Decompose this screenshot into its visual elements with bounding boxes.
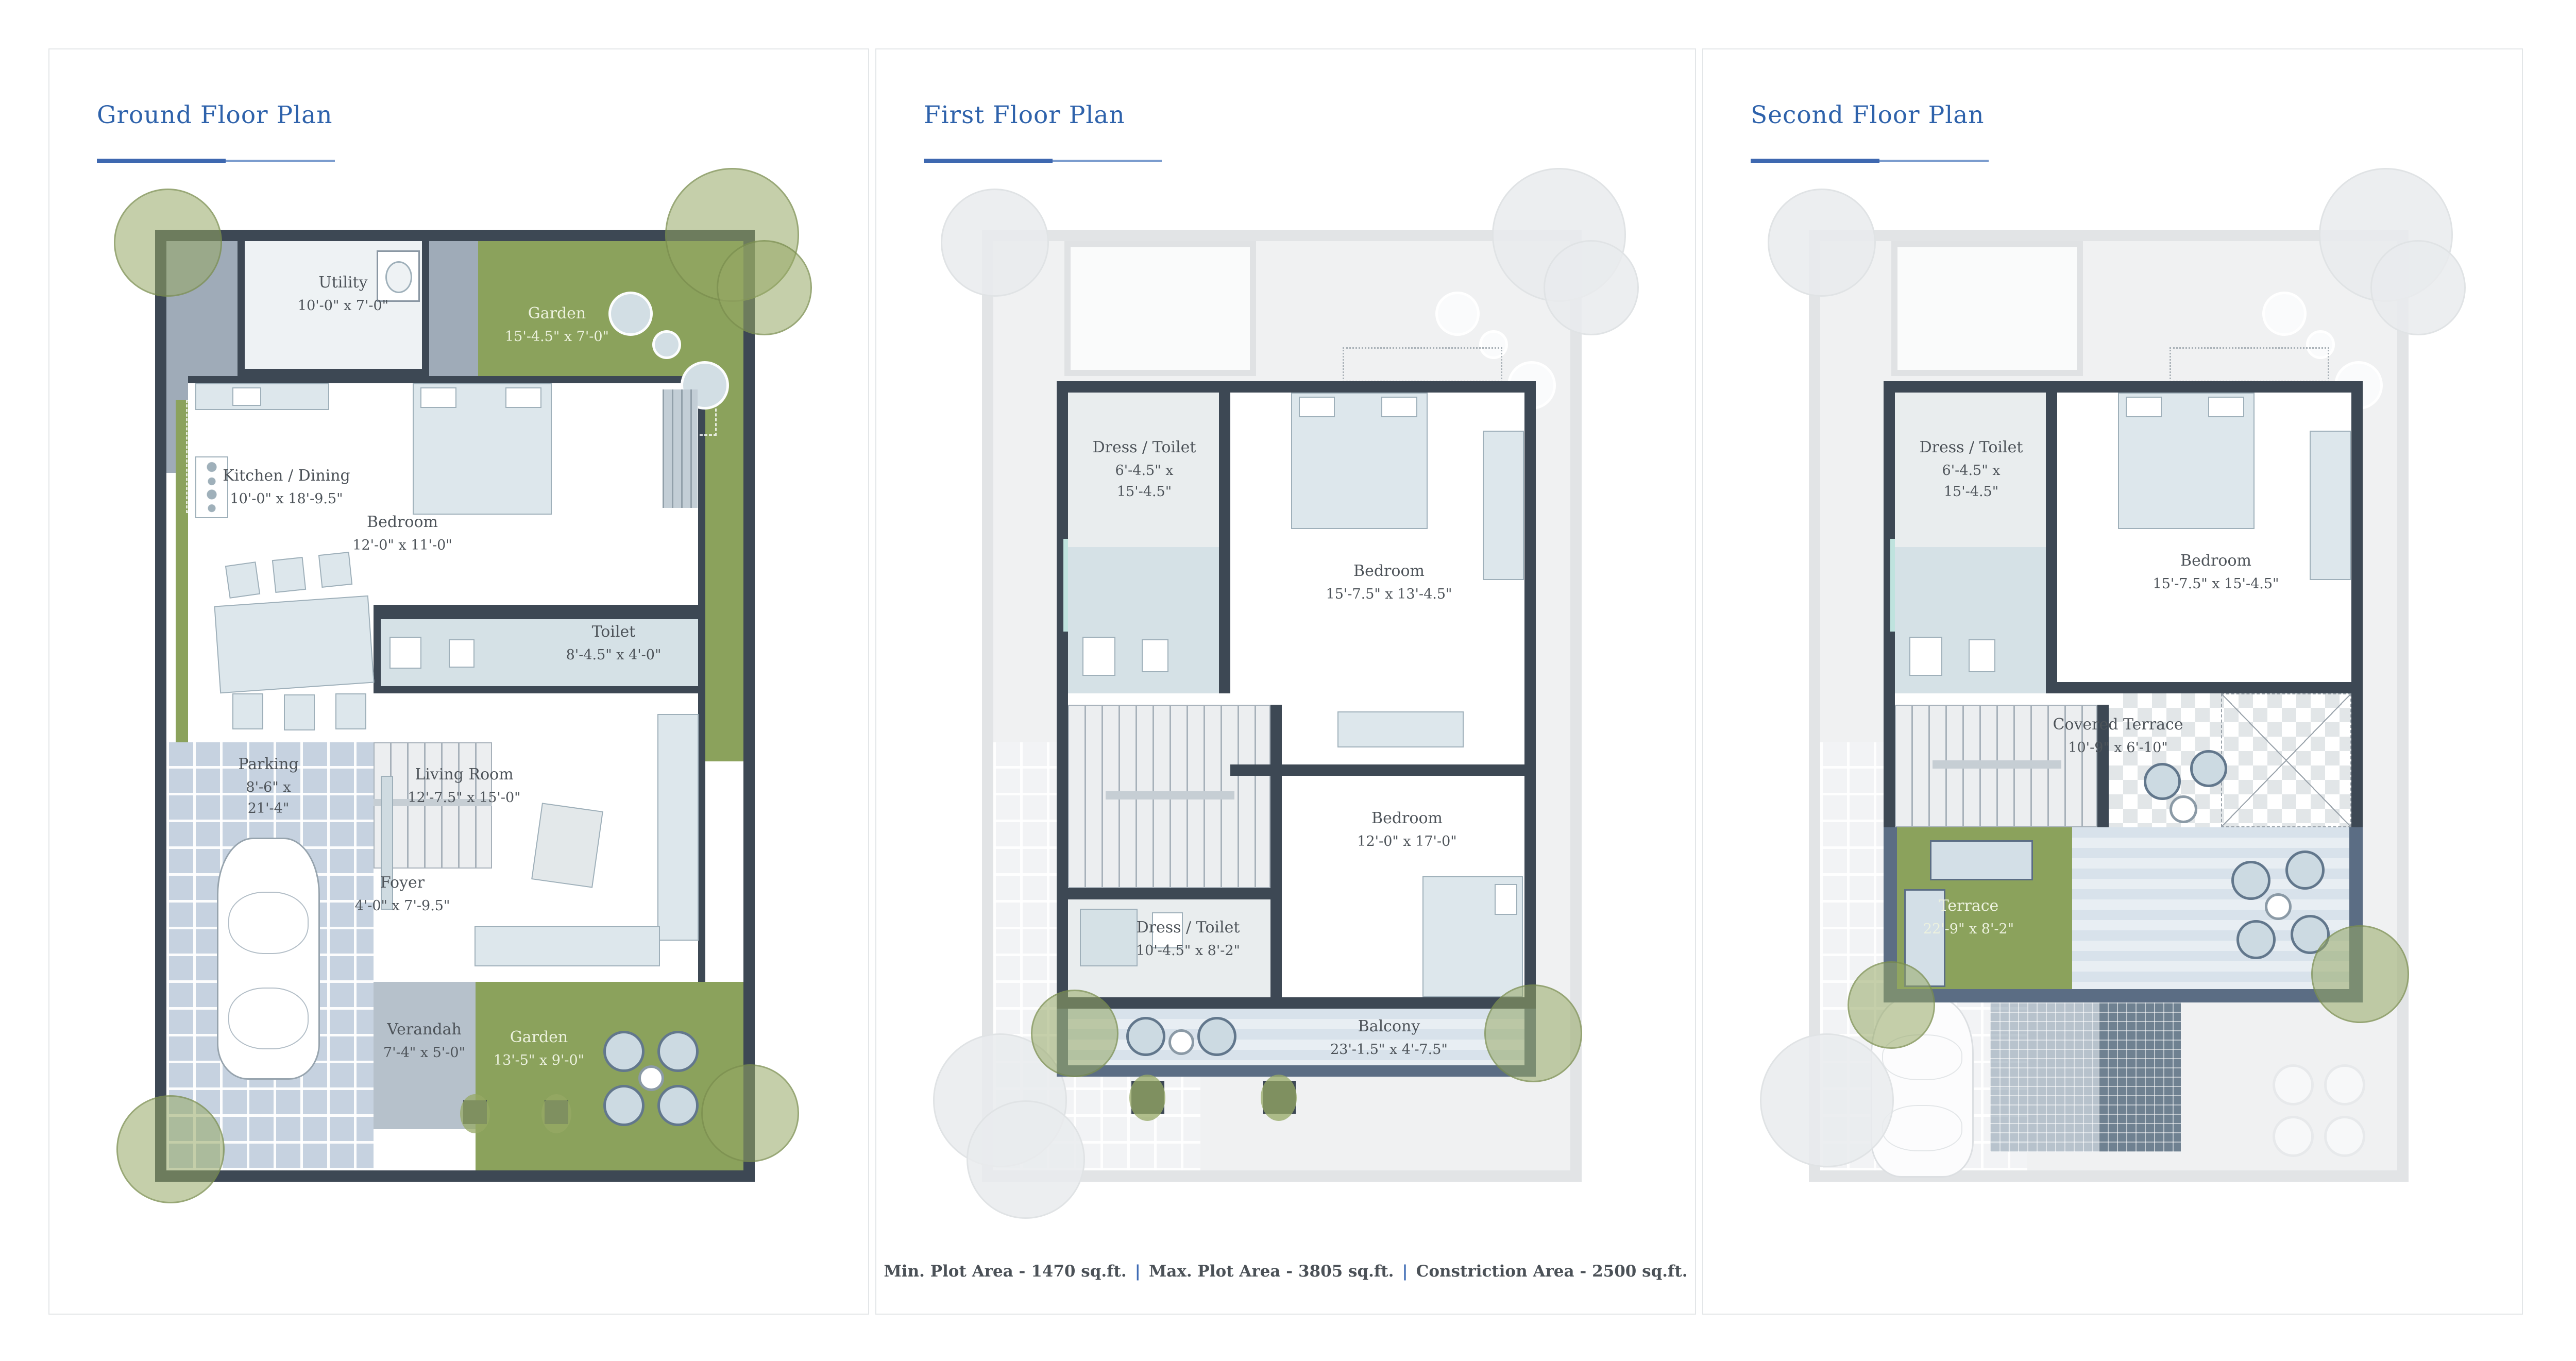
ghost-utility bbox=[1064, 241, 1256, 376]
separator: | bbox=[1135, 1262, 1141, 1281]
panel-ground-floor: Ground Floor Plan Utility10'-0" x 7'-0" … bbox=[48, 48, 869, 1315]
tree-icon bbox=[717, 240, 812, 335]
dining-chair-icon bbox=[335, 693, 366, 729]
title-underline bbox=[1751, 159, 1989, 163]
terrace-chair-icon bbox=[2144, 763, 2181, 800]
planter-icon bbox=[1261, 1075, 1297, 1121]
plot-area-note: Min. Plot Area - 1470 sq.ft.|Max. Plot A… bbox=[876, 1262, 1695, 1281]
dining-chair-icon bbox=[232, 693, 263, 729]
dining-table-icon bbox=[214, 596, 374, 694]
ghost-bush-icon bbox=[2262, 292, 2307, 336]
room-label-bedroom: Bedroom15'-7.5" x 15'-4.5" bbox=[2128, 549, 2303, 594]
room-label-verandah: Verandah7'-4" x 5'-0" bbox=[377, 1018, 472, 1063]
dining-chair-icon bbox=[284, 694, 315, 730]
room-label-bedroom-2: Bedroom12'-0" x 17'-0" bbox=[1322, 807, 1492, 852]
planter-icon bbox=[460, 1094, 490, 1133]
coffee-table-icon bbox=[531, 803, 603, 888]
sofa-icon bbox=[1483, 431, 1524, 580]
bush-icon bbox=[652, 330, 681, 359]
page-title-first: First Floor Plan bbox=[924, 101, 1125, 129]
pergola-mesh-dark bbox=[2098, 1002, 2181, 1152]
pillow-icon bbox=[1299, 397, 1335, 417]
ghost-garden-chair-icon bbox=[2273, 1116, 2314, 1157]
sofa-icon bbox=[2310, 431, 2351, 580]
room-label-dress-toilet-1: Dress / Toilet 6'-4.5" x 15'-4.5" bbox=[1082, 436, 1206, 503]
pillow-icon bbox=[2126, 397, 2162, 417]
balcony-chair-icon bbox=[1126, 1017, 1165, 1056]
garden-chair-icon bbox=[603, 1031, 645, 1072]
ghost-tree-icon bbox=[2370, 240, 2466, 335]
sofa-icon bbox=[474, 926, 660, 966]
canopy-dotted-outline bbox=[1343, 347, 1502, 382]
balcony-chair-icon bbox=[1197, 1017, 1236, 1056]
room-label-parking: Parking 8'-6" x 21'-4" bbox=[212, 753, 325, 820]
garden-table-icon bbox=[638, 1065, 664, 1091]
tree-icon bbox=[1484, 984, 1582, 1082]
panel-first-floor: First Floor Plan Dress / bbox=[875, 48, 1696, 1315]
room-label-utility: Utility10'-0" x 7'-0" bbox=[266, 271, 420, 316]
tree-icon bbox=[701, 1064, 799, 1162]
pillow-icon bbox=[505, 387, 541, 408]
planter-icon bbox=[1129, 1075, 1165, 1121]
room-label-garden-bottom: Garden13'-5" x 9'-0" bbox=[480, 1026, 598, 1071]
kitchen-sink-icon bbox=[232, 387, 261, 406]
page-title-ground: Ground Floor Plan bbox=[97, 101, 332, 129]
room-label-terrace: Terrace22'-9" x 8'-2" bbox=[1902, 894, 2036, 940]
partition-wall bbox=[1219, 393, 1230, 693]
max-plot-area: Max. Plot Area - 3805 sq.ft. bbox=[1149, 1262, 1394, 1281]
partition-wall bbox=[2046, 393, 2057, 693]
deck-chair-icon bbox=[2285, 850, 2325, 890]
pergola-mesh bbox=[1990, 1002, 2098, 1152]
partition-wall bbox=[1270, 705, 1282, 1009]
deck-table-icon bbox=[2265, 893, 2292, 920]
partition-wall bbox=[1230, 764, 1524, 776]
desk-icon bbox=[1337, 711, 1464, 747]
room-label-bedroom: Bedroom12'-0" x 11'-0" bbox=[325, 511, 480, 556]
second-floor-plan: Dress / Toilet 6'-4.5" x 15'-4.5" Bedroo… bbox=[1809, 230, 2409, 1182]
ghost-garden-chair-icon bbox=[2273, 1064, 2314, 1105]
garden-chair-icon bbox=[657, 1031, 699, 1072]
ghost-garden-chair-icon bbox=[2324, 1116, 2365, 1157]
min-plot-area: Min. Plot Area - 1470 sq.ft. bbox=[884, 1262, 1126, 1281]
dining-chair-icon bbox=[272, 557, 306, 593]
stair-rail bbox=[1933, 760, 2061, 769]
garden-bottom bbox=[476, 982, 743, 1170]
pillow-icon bbox=[1495, 884, 1517, 915]
dining-chair-icon bbox=[318, 552, 352, 588]
room-label-living: Living Room12'-7.5" x 15'-0" bbox=[377, 763, 552, 808]
pillow-icon bbox=[420, 387, 456, 408]
room-label-balcony: Balcony23'-1.5" x 4'-7.5" bbox=[1301, 1015, 1477, 1060]
deck-chair-icon bbox=[2231, 861, 2270, 900]
ghost-tree-icon bbox=[1768, 189, 1876, 297]
ghost-tree-icon bbox=[941, 189, 1049, 297]
room-label-dress-toilet-2: Dress / Toilet10'-4.5" x 8'-2" bbox=[1111, 916, 1265, 961]
window-accent bbox=[1063, 539, 1068, 632]
garden-chair-icon bbox=[603, 1085, 645, 1126]
ghost-tree-icon bbox=[1544, 240, 1639, 335]
room-label-covered-terrace: Covered Terrace10'-9" x 6'-10" bbox=[2041, 713, 2195, 758]
construction-area: Constriction Area - 2500 sq.ft. bbox=[1416, 1262, 1688, 1281]
tree-icon bbox=[114, 189, 222, 297]
toilet-wc-icon bbox=[389, 637, 421, 669]
deck-chair-icon bbox=[2236, 920, 2276, 959]
dining-chair-icon bbox=[225, 562, 260, 599]
garden-right-strip bbox=[705, 396, 743, 761]
balcony-table-icon bbox=[1168, 1029, 1194, 1055]
pillow-icon bbox=[1381, 397, 1417, 417]
terrace-table-icon bbox=[2170, 795, 2197, 823]
kitchen-counter bbox=[195, 383, 329, 410]
toilet-wc-icon bbox=[1082, 637, 1115, 676]
room-label-kitchen: Kitchen / Dining10'-0" x 18'-9.5" bbox=[209, 464, 364, 509]
wardrobe-icon bbox=[663, 389, 698, 508]
partition-wall bbox=[2057, 682, 2351, 693]
car-icon bbox=[217, 838, 320, 1080]
ground-floor-plan: Utility10'-0" x 7'-0" Garden15'-4.5" x 7… bbox=[155, 230, 755, 1182]
garden-chair-icon bbox=[657, 1085, 699, 1126]
sink-icon bbox=[1142, 639, 1168, 672]
pillow-icon bbox=[2208, 397, 2244, 417]
sofa-icon bbox=[657, 714, 699, 941]
stair-rail bbox=[1106, 791, 1234, 799]
canopy-dotted-outline bbox=[2170, 347, 2329, 382]
room-label-dress-toilet: Dress / Toilet 6'-4.5" x 15'-4.5" bbox=[1909, 436, 2033, 503]
separator: | bbox=[1402, 1262, 1408, 1281]
partition-wall bbox=[1068, 888, 1270, 899]
ghost-bush-icon bbox=[1435, 292, 1480, 336]
terrace-chair-icon bbox=[2190, 750, 2227, 787]
floor-plan-sheet: Ground Floor Plan Utility10'-0" x 7'-0" … bbox=[0, 0, 2576, 1361]
first-floor-plan: Dress / Toilet 6'-4.5" x 15'-4.5" Bedroo… bbox=[982, 230, 1582, 1182]
page-title-second: Second Floor Plan bbox=[1751, 101, 1985, 129]
ghost-tree-icon bbox=[967, 1100, 1085, 1219]
toilet-wc-icon bbox=[1909, 637, 1942, 676]
tree-icon bbox=[116, 1095, 225, 1203]
title-underline bbox=[924, 159, 1162, 163]
ghost-garden-chair-icon bbox=[2324, 1064, 2365, 1105]
skylight-x-outline bbox=[2221, 693, 2351, 827]
lounge-chair-icon bbox=[1930, 840, 2033, 880]
room-label-toilet: Toilet8'-4.5" x 4'-0" bbox=[547, 620, 681, 666]
sink-icon bbox=[1969, 639, 1995, 672]
ghost-tree-icon bbox=[1760, 1033, 1894, 1167]
title-underline bbox=[97, 159, 335, 163]
sink-icon bbox=[449, 639, 474, 668]
tree-icon bbox=[1848, 961, 1935, 1049]
panel-second-floor: Second Floor Plan bbox=[1702, 48, 2523, 1315]
tree-icon bbox=[2311, 925, 2409, 1023]
room-label-bedroom-1: Bedroom15'-7.5" x 13'-4.5" bbox=[1301, 559, 1477, 605]
room-label-garden-top: Garden15'-4.5" x 7'-0" bbox=[469, 302, 645, 347]
planter-icon bbox=[541, 1094, 571, 1133]
ghost-utility bbox=[1891, 241, 2083, 376]
tree-icon bbox=[1031, 990, 1118, 1077]
room-label-foyer: Foyer4'-0" x 7'-9.5" bbox=[353, 871, 451, 916]
window-accent bbox=[1890, 539, 1895, 632]
